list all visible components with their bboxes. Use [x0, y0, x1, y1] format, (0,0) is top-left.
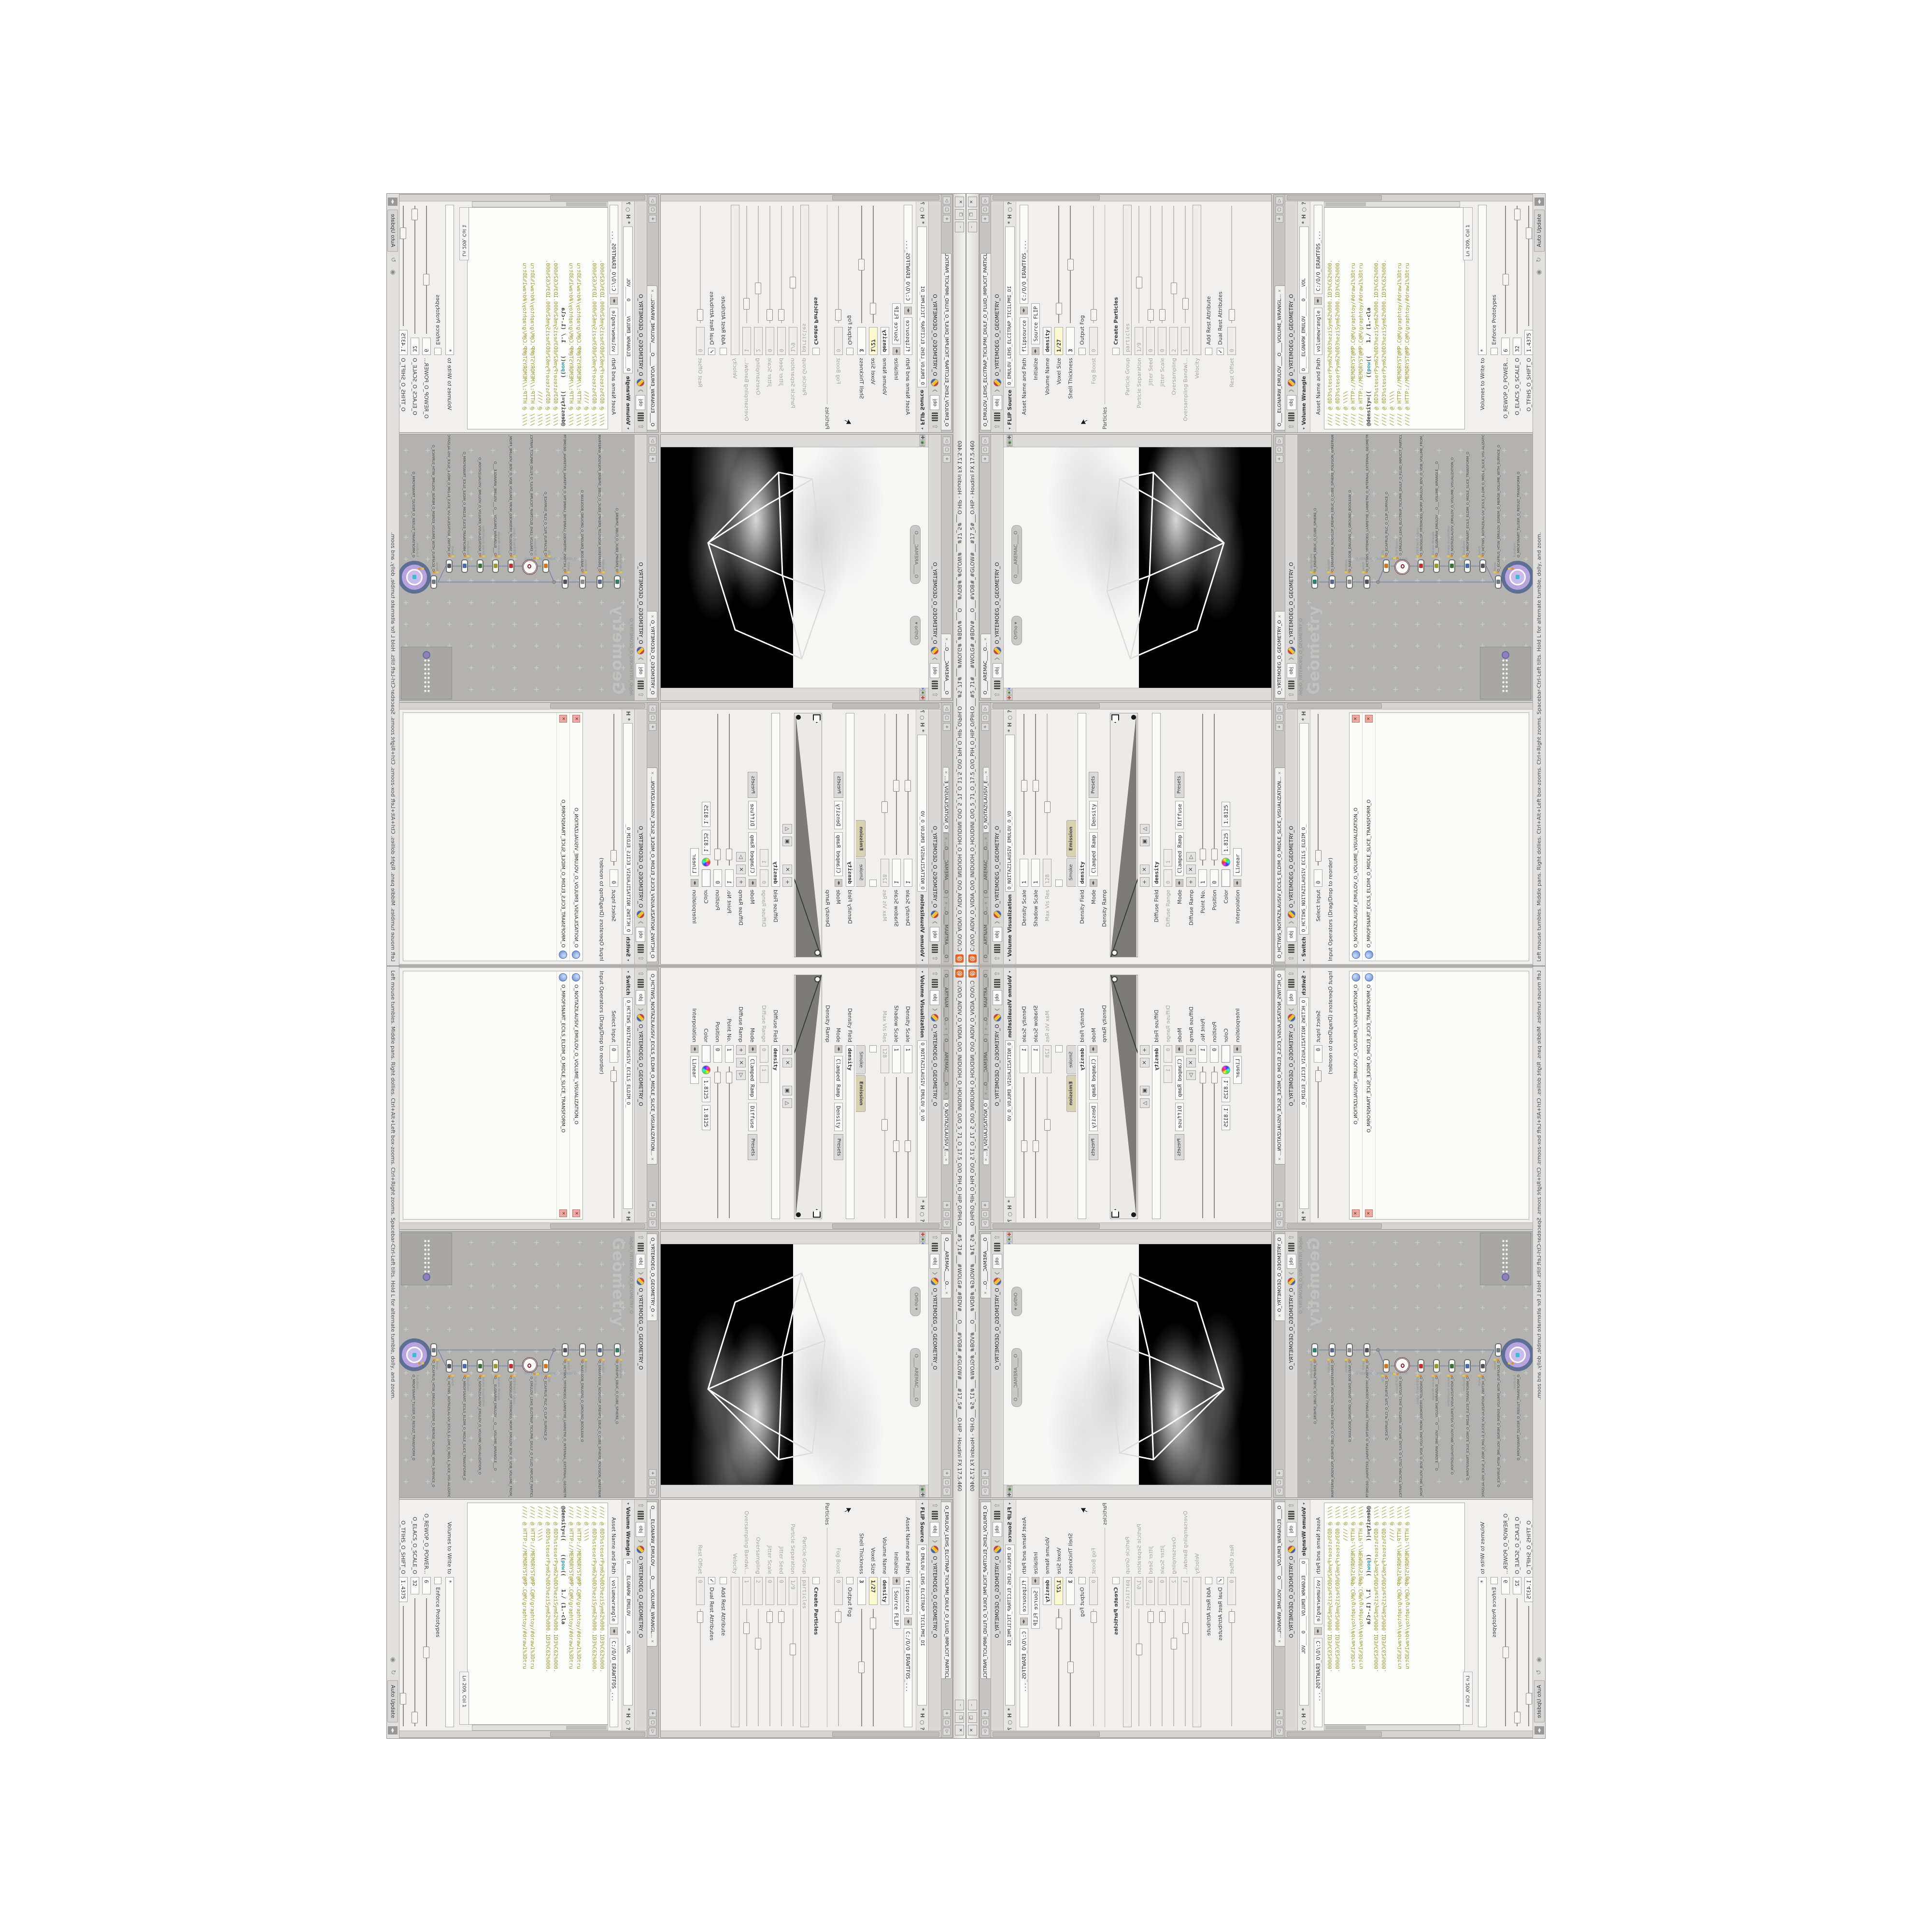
- toolbar-icon[interactable]: ✷: [919, 1237, 925, 1242]
- minimize-button[interactable]: –: [968, 222, 977, 232]
- tab-close-icon[interactable]: ✕: [983, 638, 988, 641]
- list-item[interactable]: O_MROFSNART_ECILS_ELDIM_O_MIDLE_SLICE_TR…: [1363, 971, 1376, 1219]
- expand-icon[interactable]: ▾: [1008, 427, 1012, 429]
- list-item[interactable]: O_NOITAZILAUSIV_EMULOV_O_VOLUME_VISUALIZ…: [569, 971, 582, 1219]
- breadcrumb-root[interactable]: obj: [930, 990, 940, 1005]
- max-vis-res-slider[interactable]: [1043, 713, 1051, 856]
- vex-code-editor[interactable]: //// @ 0D3%steserPym62%0D3%eziSym62%000.…: [1324, 1503, 1465, 1725]
- network-canvas[interactable]: /obj/O_YRTEMOEG_O_GEOMETRY_O Geometry O_…: [399, 1232, 634, 1497]
- jitter-seed-field[interactable]: 0: [1146, 327, 1155, 355]
- pane-split-icon[interactable]: +: [1276, 1201, 1283, 1209]
- pane-tab[interactable]: O_NOITAZILAUSIV_E...✕: [943, 767, 949, 833]
- ramp-add-button[interactable]: +: [1140, 1045, 1150, 1055]
- pane-collapse-icon[interactable]: ▷: [943, 1220, 951, 1227]
- ramp-point-end[interactable]: [1131, 715, 1136, 720]
- ortho-camera-menu[interactable]: Ortho ▾: [1011, 616, 1022, 645]
- network-node[interactable]: VDB from Polygons O_SNOGILOP_YRTEMOEG_MO…: [507, 1359, 514, 1374]
- asset-path-field[interactable]: C:/O/O_ERAWTFOS_...: [1314, 1638, 1322, 1727]
- volume-name-field[interactable]: density: [881, 1577, 889, 1605]
- up-arrow-icon[interactable]: ⇧: [994, 692, 1001, 697]
- gear-icon[interactable]: *: [919, 1708, 925, 1711]
- breadcrumb[interactable]: O_YRTEMOEG_O_GEOMETRY_O: [1288, 294, 1294, 376]
- breadcrumb[interactable]: O_YRTEMOEG_O_GEOMETRY_O: [638, 294, 644, 376]
- asset-path-field[interactable]: C:/O/O_ERAWTFOS_...: [904, 1628, 912, 1727]
- grip-icon[interactable]: ◀▶: [1176, 1045, 1183, 1053]
- network-node[interactable]: VDB from Polygons O_SNOGILOP_YRTEMOEG_MO…: [507, 558, 514, 573]
- statusbar-grip-icon[interactable]: ◀▶: [1534, 198, 1544, 206]
- breadcrumb[interactable]: O_YRTEMOEG_O_GEOMETRY_O: [1288, 826, 1294, 908]
- shift-field[interactable]: 1.4375: [1524, 330, 1533, 355]
- up-arrow-icon[interactable]: ⇧: [638, 424, 644, 429]
- rest-offset-field[interactable]: 0: [696, 327, 705, 355]
- grip-icon[interactable]: ◀▶: [691, 1045, 698, 1053]
- node-body[interactable]: [1364, 575, 1370, 589]
- shadow-scale-field[interactable]: 1: [892, 859, 901, 887]
- ramp-delete-button[interactable]: ✕: [736, 1058, 746, 1067]
- power-slider[interactable]: [1501, 205, 1510, 335]
- hscript-icon[interactable]: H: [625, 1216, 631, 1221]
- diffuse-range-min[interactable]: 0: [1164, 869, 1172, 887]
- viewport-3d-canvas[interactable]: Ortho ▾ O____AREMAC____O: [1004, 1244, 1271, 1485]
- breadcrumb[interactable]: O_YRTEMOEG_O_GEOMETRY_O: [994, 1556, 1000, 1638]
- ramp-collapse-button[interactable]: ▷: [1186, 1070, 1196, 1080]
- node-body[interactable]: [579, 1343, 586, 1357]
- network-node[interactable]: Transform O_MROFSNART_ECILS_ELDIM_O_MIDL…: [1464, 1359, 1472, 1374]
- select-input-slider[interactable]: [1314, 713, 1322, 867]
- auto-update-dropdown[interactable]: Auto Update: [1534, 1680, 1545, 1722]
- pane-tab[interactable]: O____ELGNARW_EMULOV____O____VOLUME_WRANG…: [647, 1502, 657, 1647]
- node-body[interactable]: [461, 559, 468, 573]
- auto-update-dropdown[interactable]: Auto Update: [388, 210, 398, 252]
- network-node[interactable]: VDB from Polygons O_SNOGILOP_YRTEMOEG_MO…: [1418, 1359, 1425, 1374]
- jitter-scale-field[interactable]: 0: [1158, 327, 1166, 355]
- magnify-icon[interactable]: ○: [625, 1720, 631, 1725]
- asset-name-field[interactable]: volumewrangle: [1314, 308, 1322, 355]
- velocity-field[interactable]: [731, 205, 739, 355]
- pane-tab[interactable]: O____ARTNAM____O...✕: [943, 897, 949, 962]
- tab-close-icon[interactable]: ✕: [650, 1157, 654, 1161]
- pane-maximize-icon[interactable]: ▢: [649, 1719, 656, 1726]
- node-name-field[interactable]: O_EMULOV_LEHS_ELCITRAP_TICILPMI_DI: [918, 1545, 927, 1705]
- node-body[interactable]: [614, 575, 621, 589]
- node-body[interactable]: [430, 575, 437, 589]
- pane-maximize-icon[interactable]: ▢: [1276, 1719, 1283, 1726]
- rest-offset-field[interactable]: 0: [696, 1577, 705, 1605]
- output-fog-checkbox[interactable]: [847, 348, 854, 355]
- presets-button[interactable]: Presets: [748, 772, 757, 798]
- tab-emission[interactable]: Emission: [856, 820, 866, 857]
- pane-collapse-icon[interactable]: ▷: [649, 437, 656, 444]
- node-name-field[interactable]: O_NOITAZILAUSIV_EMULOV_O_VO: [1005, 735, 1015, 892]
- breadcrumb[interactable]: O_YRTEMOEG_O_GEOMETRY_O: [994, 1024, 1000, 1106]
- jitter-scale-field[interactable]: 0: [1158, 1577, 1166, 1605]
- network-node[interactable]: Merge O_ECAFRUS_HTIW_EMULOV_EGREM_O_MERG…: [1495, 574, 1503, 589]
- node-body[interactable]: [542, 559, 549, 573]
- magnify-icon[interactable]: ○: [1301, 207, 1307, 212]
- up-arrow-icon[interactable]: ⇧: [638, 1503, 644, 1508]
- network-node[interactable]: Volume Wrangle O___ELGNARW_EMULOV___O___…: [491, 1359, 499, 1374]
- network-node[interactable]: Switch O_HCTIWS_YRTEMOEG_LANRETXE_LANRET…: [1364, 574, 1371, 589]
- scale-field[interactable]: 32: [1513, 338, 1521, 355]
- oversampling-bandwidth-slider[interactable]: [1181, 205, 1190, 324]
- hscript-icon[interactable]: H: [919, 723, 925, 727]
- expand-icon[interactable]: ▾: [1008, 959, 1012, 961]
- pane-maximize-icon[interactable]: ▢: [649, 1210, 656, 1218]
- color-swatch[interactable]: [702, 869, 710, 887]
- node-body[interactable]: [522, 1357, 538, 1373]
- gear-icon[interactable]: *: [625, 1708, 631, 1711]
- pane-tab[interactable]: O_EMULOV_LEHS_ELCITRAP_TICILPMI_DIULF_O_…: [941, 253, 952, 430]
- node-body[interactable]: [508, 1359, 514, 1373]
- node-body[interactable]: [1394, 1357, 1410, 1373]
- oversampling-slider[interactable]: [754, 205, 763, 324]
- gear-icon[interactable]: *: [625, 221, 631, 224]
- mode2-field[interactable]: Clamped Ramp: [748, 832, 757, 876]
- voxel-size-field[interactable]: 1/27: [869, 327, 878, 355]
- dual-rest-checkbox[interactable]: ✓: [709, 348, 716, 355]
- pane-collapse-icon[interactable]: ▷: [1276, 197, 1283, 204]
- up-arrow-icon[interactable]: ⇧: [638, 1235, 644, 1240]
- point-no-field[interactable]: 1: [1198, 869, 1207, 887]
- shell-thickness-field[interactable]: 3: [1066, 327, 1075, 355]
- voxel-size-slider[interactable]: [869, 1608, 878, 1727]
- help-icon[interactable]: ?: [919, 1727, 925, 1730]
- gear-icon[interactable]: *: [1007, 1200, 1013, 1203]
- node-body[interactable]: [1346, 1343, 1353, 1357]
- create-particles-checkbox[interactable]: [1112, 1577, 1120, 1584]
- shift-slider[interactable]: [399, 1605, 408, 1727]
- help-icon[interactable]: ?: [1007, 202, 1013, 205]
- remove-item-button[interactable]: ✕: [1352, 715, 1360, 723]
- ramp-handle[interactable]: [1111, 714, 1119, 723]
- restore-button[interactable]: ❐: [955, 1712, 964, 1723]
- up-arrow-icon[interactable]: ⇧: [932, 1235, 938, 1240]
- node-body[interactable]: [406, 569, 423, 585]
- shift-slider[interactable]: [1524, 1605, 1533, 1727]
- title-bar[interactable]: @ C:/O/O_AIDIV_O_VIDIA_O/O_INIDUOH_O_HOU…: [966, 966, 979, 1738]
- breadcrumb-root[interactable]: obj: [1287, 927, 1296, 942]
- expand-icon[interactable]: ▾: [920, 427, 924, 429]
- node-body[interactable]: [1418, 1359, 1424, 1373]
- pane-tab[interactable]: O____AREMAC____O...✕: [941, 634, 952, 698]
- volumes-to-write-field[interactable]: *: [1478, 1577, 1487, 1727]
- pane-tab[interactable]: O_HCTIWS_NOITAZILAUSIV_ECILS_ELDIM_O_MID…: [1275, 767, 1285, 962]
- pane-tab[interactable]: O____AREMAC____O...✕: [943, 1035, 949, 1099]
- point-no-slider[interactable]: [1198, 1065, 1207, 1219]
- shadow-scale-field[interactable]: 1: [1031, 1045, 1040, 1073]
- network-node[interactable]: Clip O_ECAFRUS_PILC_O_CLIP_SURFACE_O: [1383, 1359, 1391, 1374]
- grip-icon[interactable]: ◀▶: [1234, 1045, 1241, 1053]
- code-scrollbar[interactable]: [472, 1725, 608, 1731]
- particle-separation-field[interactable]: 1/9: [1135, 327, 1143, 355]
- network-node[interactable]: PolyWire O_EMARFERIW_NOGYLOP_EREHPS_EBUC…: [596, 574, 603, 589]
- breadcrumb-root[interactable]: obj: [636, 990, 646, 1005]
- list-item[interactable]: O_MROFSNART_ECILS_ELDIM_O_MIDLE_SLICE_TR…: [1363, 713, 1376, 961]
- jitter-seed-field[interactable]: 0: [1146, 1577, 1155, 1605]
- particle-separation-field[interactable]: 1/9: [789, 1577, 797, 1605]
- density-field-input[interactable]: density: [846, 713, 854, 887]
- pane-maximize-icon[interactable]: ▢: [981, 1719, 989, 1726]
- tab-close-icon[interactable]: ✕: [944, 837, 948, 840]
- gear-icon[interactable]: *: [1301, 718, 1307, 721]
- ramp-add-button[interactable]: +: [782, 877, 792, 887]
- ramp-delete-button[interactable]: ✕: [782, 1058, 792, 1067]
- rest-offset-slider[interactable]: [696, 205, 705, 324]
- camera-name-pill[interactable]: O____AREMAC____O: [910, 525, 921, 584]
- network-node[interactable]: Switch O_HCTIWS_NOITAZILAUSIV_ECILS_ELDI…: [445, 558, 453, 573]
- mode2-field[interactable]: Clamped Ramp: [748, 1056, 757, 1100]
- node-body[interactable]: [1449, 559, 1455, 573]
- node-body[interactable]: [1509, 569, 1526, 585]
- breadcrumb-root[interactable]: obj: [636, 1522, 646, 1537]
- hscript-icon[interactable]: H: [1007, 214, 1013, 219]
- grip-icon[interactable]: ◀▶: [835, 879, 842, 887]
- network-node[interactable]: PolyWire O_EMARFERIW_NOGYLOP_EREHPS_EBUC…: [1329, 574, 1336, 589]
- node-body[interactable]: [430, 1343, 437, 1357]
- pane-collapse-icon[interactable]: ▷: [981, 197, 989, 204]
- scale-slider[interactable]: [411, 205, 419, 335]
- breadcrumb-root[interactable]: obj: [993, 1254, 1002, 1269]
- up-arrow-icon[interactable]: ⇧: [932, 971, 938, 977]
- tab-close-icon[interactable]: ✕: [650, 771, 654, 775]
- ramp-collapse-button[interactable]: ▷: [736, 1070, 746, 1080]
- density-field-input[interactable]: density: [1078, 1045, 1086, 1219]
- checkbox[interactable]: [1055, 1045, 1063, 1052]
- breadcrumb[interactable]: O_YRTEMOEG_O_GEOMETRY_O: [638, 562, 644, 644]
- node-body[interactable]: [597, 575, 603, 589]
- volumes-to-write-field[interactable]: *: [1478, 205, 1487, 355]
- initialize-dropdown[interactable]: Source FLIP: [1031, 1588, 1040, 1629]
- breadcrumb-root[interactable]: obj: [930, 1254, 940, 1269]
- pane-maximize-icon[interactable]: ▢: [943, 714, 951, 722]
- network-node[interactable]: Clip O_ECAFRUS_PILC_O_CLIP_SURFACE_O: [1383, 558, 1391, 573]
- asset-name-field[interactable]: volumewrangle: [610, 308, 618, 355]
- grip-icon[interactable]: ◀▶: [1032, 347, 1039, 355]
- expand-icon[interactable]: ▾: [920, 971, 924, 973]
- hscript-icon[interactable]: H: [1301, 1216, 1307, 1221]
- tab-close-icon[interactable]: ✕: [984, 901, 988, 905]
- density-scale-field[interactable]: 1: [904, 859, 912, 887]
- pane-collapse-icon[interactable]: ▷: [1276, 1220, 1283, 1227]
- scrollbar[interactable]: [661, 1731, 941, 1737]
- max-vis-res-slider[interactable]: [881, 1076, 889, 1219]
- up-arrow-icon[interactable]: ⇧: [1288, 955, 1295, 961]
- ortho-camera-menu[interactable]: Ortho ▾: [910, 616, 921, 645]
- interpolation-field[interactable]: Linear: [690, 1056, 699, 1084]
- oversampling-bandwidth-field[interactable]: 1: [1181, 1577, 1190, 1605]
- network-node[interactable]: PolyWire O_EMARFERIW_NOGYLOP_EREHPS_EBUC…: [1329, 1343, 1336, 1358]
- breadcrumb[interactable]: O_YRTEMOEG_O_GEOMETRY_O: [994, 562, 1000, 644]
- pane-split-icon[interactable]: +: [943, 1469, 951, 1477]
- checkbox[interactable]: [870, 880, 877, 887]
- fog-boost-slider[interactable]: [834, 205, 843, 324]
- scrollbar[interactable]: [1285, 703, 1533, 710]
- pane-maximize-icon[interactable]: ▢: [981, 206, 989, 213]
- ramp-add-button[interactable]: +: [1186, 877, 1196, 887]
- pane-maximize-icon[interactable]: ▢: [649, 206, 656, 213]
- asset-path-field[interactable]: C:/O/O_ERAWTFOS_...: [1314, 205, 1322, 294]
- particle-group-field[interactable]: particles: [1123, 205, 1132, 355]
- fog-boost-slider[interactable]: [1089, 205, 1098, 324]
- node-name-field[interactable]: O_NOITAZILAUSIV_EMULOV_O_VO: [918, 735, 927, 892]
- select-input-slider[interactable]: [1314, 1065, 1322, 1219]
- shell-thickness-slider[interactable]: [857, 205, 866, 324]
- shift-field[interactable]: 1.4375: [399, 1577, 408, 1602]
- network-node[interactable]: FLIP Source O_EMULOV_LEHS_ELCITRAP_TICIL…: [530, 1357, 538, 1372]
- ramp-triangle-marker[interactable]: △: [1140, 1098, 1150, 1108]
- pane-split-icon[interactable]: +: [981, 215, 989, 223]
- scrollbar[interactable]: [991, 1731, 1271, 1737]
- position-slider[interactable]: [713, 713, 722, 867]
- jitter-seed-slider[interactable]: [1146, 205, 1155, 324]
- network-node[interactable]: Boolean O_NAELOOB_DNUORG_O_GROUND_BOOLEA…: [1346, 1343, 1354, 1358]
- diffuse-range-max[interactable]: 1: [1164, 849, 1172, 867]
- up-arrow-icon[interactable]: ⇧: [994, 955, 1001, 961]
- asset-path-field[interactable]: C:/O/O_ERAWTFOS_...: [610, 205, 618, 294]
- refresh-icon[interactable]: ↻: [1535, 256, 1544, 264]
- power-field[interactable]: 6: [422, 1577, 431, 1594]
- shift-field[interactable]: 1.4375: [1524, 1577, 1533, 1602]
- toolbar-icon[interactable]: ✚: [919, 695, 925, 700]
- breadcrumb-root[interactable]: obj: [930, 395, 940, 410]
- network-node[interactable]: Transform O_MROFSNART_TLUSER_O_RESULT_TR…: [1509, 571, 1517, 585]
- add-rest-checkbox[interactable]: [720, 348, 727, 355]
- oversampling-field[interactable]: 2: [754, 1577, 763, 1605]
- expand-icon[interactable]: ▾: [1302, 971, 1306, 973]
- pane-split-icon[interactable]: +: [981, 1469, 989, 1477]
- toolbar-icon[interactable]: ▣: [1007, 434, 1013, 435]
- point-no-field[interactable]: 1: [725, 1045, 734, 1063]
- ramp-add-button[interactable]: +: [1140, 877, 1150, 887]
- viewport-3d-canvas[interactable]: Ortho ▾ O____AREMAC____O: [1004, 447, 1271, 688]
- help-icon[interactable]: ?: [919, 1219, 925, 1222]
- interpolation-field[interactable]: Linear: [1233, 1056, 1242, 1084]
- diffuse-range-max[interactable]: 1: [1164, 1065, 1172, 1083]
- output-fog-checkbox[interactable]: [847, 1577, 854, 1584]
- node-name-field[interactable]: O____ELGNARW_EMULOV_____O____VOL: [624, 227, 633, 374]
- enforce-prototypes-checkbox[interactable]: [1491, 1577, 1498, 1584]
- refresh-icon[interactable]: ↻: [389, 256, 398, 264]
- up-arrow-icon[interactable]: ⇧: [638, 955, 644, 961]
- hscript-icon[interactable]: H: [1007, 1205, 1013, 1209]
- node-body[interactable]: [1433, 1359, 1440, 1373]
- mode-field[interactable]: Clamped Ramp: [1089, 1056, 1098, 1100]
- network-canvas[interactable]: /obj/O_YRTEMOEG_O_GEOMETRY_O Geometry O_…: [1298, 435, 1533, 700]
- network-canvas[interactable]: /obj/O_YRTEMOEG_O_GEOMETRY_O Geometry O_…: [399, 435, 634, 700]
- node-body[interactable]: [1329, 575, 1335, 589]
- breadcrumb[interactable]: O_YRTEMOEG_O_GEOMETRY_O: [932, 826, 938, 908]
- oversampling-bandwidth-field[interactable]: 1: [1181, 327, 1190, 355]
- magnify-icon[interactable]: ○: [919, 715, 925, 720]
- color-swatch[interactable]: [1222, 1045, 1230, 1063]
- tab-close-icon[interactable]: ✕: [944, 638, 949, 641]
- ramp-value-1[interactable]: 1.8125: [1222, 830, 1230, 855]
- hscript-icon[interactable]: H: [919, 1713, 925, 1718]
- presets-button[interactable]: Presets: [834, 1134, 843, 1160]
- remove-item-button[interactable]: ✕: [559, 715, 567, 723]
- mode2-field[interactable]: Clamped Ramp: [1175, 1056, 1184, 1100]
- pane-maximize-icon[interactable]: ▢: [1276, 206, 1283, 213]
- voxel-size-field[interactable]: 1/27: [1054, 1577, 1063, 1605]
- expand-icon[interactable]: ▾: [626, 1503, 630, 1505]
- node-name-field[interactable]: O____ELGNARW_EMULOV_____O____VOL: [624, 1559, 633, 1706]
- pane-tab[interactable]: O____AREMAC____O...✕: [980, 1234, 991, 1298]
- max-vis-res-field[interactable]: 128: [1043, 1045, 1051, 1073]
- ramp-add-button[interactable]: +: [736, 877, 746, 887]
- network-node[interactable]: Volume Wrangle O___ELGNARW_EMULOV___O___…: [1433, 558, 1441, 573]
- fog-boost-field[interactable]: 0: [834, 327, 843, 355]
- tab-close-icon[interactable]: ✕: [1278, 615, 1282, 618]
- node-body[interactable]: [1479, 1359, 1486, 1373]
- diffuse-range-max[interactable]: 1: [760, 849, 768, 867]
- help-icon[interactable]: ?: [1301, 202, 1307, 205]
- ramp-add-button[interactable]: +: [1186, 1045, 1196, 1055]
- pane-maximize-icon[interactable]: ▢: [981, 714, 989, 722]
- pane-collapse-icon[interactable]: ▷: [981, 1220, 989, 1227]
- pane-maximize-icon[interactable]: ▢: [1276, 1478, 1283, 1486]
- pane-tab[interactable]: O_EMULOV_LEHS_ELCITRAP_TICILPMI_DIULF_O_…: [980, 1502, 991, 1679]
- scrollbar[interactable]: [991, 1222, 1271, 1229]
- node-name-field[interactable]: O____ELGNARW_EMULOV_____O____VOL: [1299, 1559, 1309, 1706]
- scale-field[interactable]: 32: [1513, 1577, 1521, 1594]
- particle-separation-slider[interactable]: [1135, 205, 1143, 324]
- jitter-scale-slider[interactable]: [766, 1608, 774, 1727]
- node-body[interactable]: [508, 559, 514, 573]
- fog-boost-slider[interactable]: [834, 1608, 843, 1727]
- select-input-field[interactable]: 0: [610, 869, 618, 887]
- ortho-camera-menu[interactable]: Ortho ▾: [1011, 1287, 1022, 1316]
- pane-collapse-icon[interactable]: ▷: [649, 1728, 656, 1735]
- jitter-seed-slider[interactable]: [1146, 1608, 1155, 1727]
- pane-split-icon[interactable]: +: [981, 455, 989, 463]
- ramp-delete-button[interactable]: ✕: [1140, 865, 1150, 874]
- network-node[interactable]: PolyWire O_EMARFERIW_NOGYLOP_EREHPS_EBUC…: [596, 1343, 603, 1358]
- tab-close-icon[interactable]: ✕: [983, 1291, 988, 1294]
- network-node[interactable]: Volume Visualization O_NOITAZILAUSIV_EMU…: [476, 558, 483, 573]
- remove-item-button[interactable]: ✕: [559, 1209, 567, 1217]
- density-scale-slider[interactable]: [1020, 713, 1028, 856]
- density-scale-field[interactable]: 1: [1020, 1045, 1028, 1073]
- network-node[interactable]: Volume Visualization O_NOITAZILAUSIV_EMU…: [476, 1359, 483, 1374]
- node-body[interactable]: [579, 575, 586, 589]
- shadow-scale-field[interactable]: 1: [1031, 859, 1040, 887]
- density-field-input[interactable]: density: [1078, 713, 1086, 887]
- ramp-point-start[interactable]: [814, 976, 821, 982]
- diffuse-field-input[interactable]: density: [771, 713, 780, 887]
- output-fog-checkbox[interactable]: [1079, 348, 1086, 355]
- shadow-scale-slider[interactable]: [892, 1076, 901, 1219]
- shadow-scale-slider[interactable]: [892, 713, 901, 856]
- gear-icon[interactable]: *: [919, 1200, 925, 1203]
- title-bar[interactable]: @ C:/O/O_AIDIV_O_VIDIA_O/O_INIDUOH_O_HOU…: [953, 194, 966, 966]
- volumes-to-write-field[interactable]: *: [445, 1577, 454, 1727]
- particle-separation-slider[interactable]: [789, 205, 797, 324]
- pane-maximize-icon[interactable]: ▢: [649, 1478, 656, 1486]
- rest-offset-slider[interactable]: [1227, 1608, 1236, 1727]
- pane-tab[interactable]: O____ELGNARW_EMULOV____O____VOLUME_WRANG…: [1275, 1502, 1285, 1647]
- hscript-icon[interactable]: H: [1301, 214, 1307, 219]
- network-node[interactable]: Boolean O_NAELOOB_DNUORG_O_GROUND_BOOLEA…: [578, 574, 586, 589]
- diffuse-field-input[interactable]: density: [1152, 1045, 1161, 1219]
- gear-icon[interactable]: *: [625, 1211, 631, 1214]
- breadcrumb[interactable]: O_YRTEMOEG_O_GEOMETRY_O: [638, 1024, 644, 1106]
- position-field[interactable]: 0: [713, 1045, 722, 1063]
- camera-name-pill[interactable]: O____AREMAC____O: [1011, 525, 1022, 584]
- add-rest-checkbox[interactable]: [720, 1577, 727, 1584]
- network-node[interactable]: Switch O_HCTIWS_NOITAZILAUSIV_ECILS_ELDI…: [445, 1359, 453, 1374]
- gear-icon[interactable]: *: [1007, 1708, 1013, 1711]
- minimize-button[interactable]: –: [955, 222, 964, 232]
